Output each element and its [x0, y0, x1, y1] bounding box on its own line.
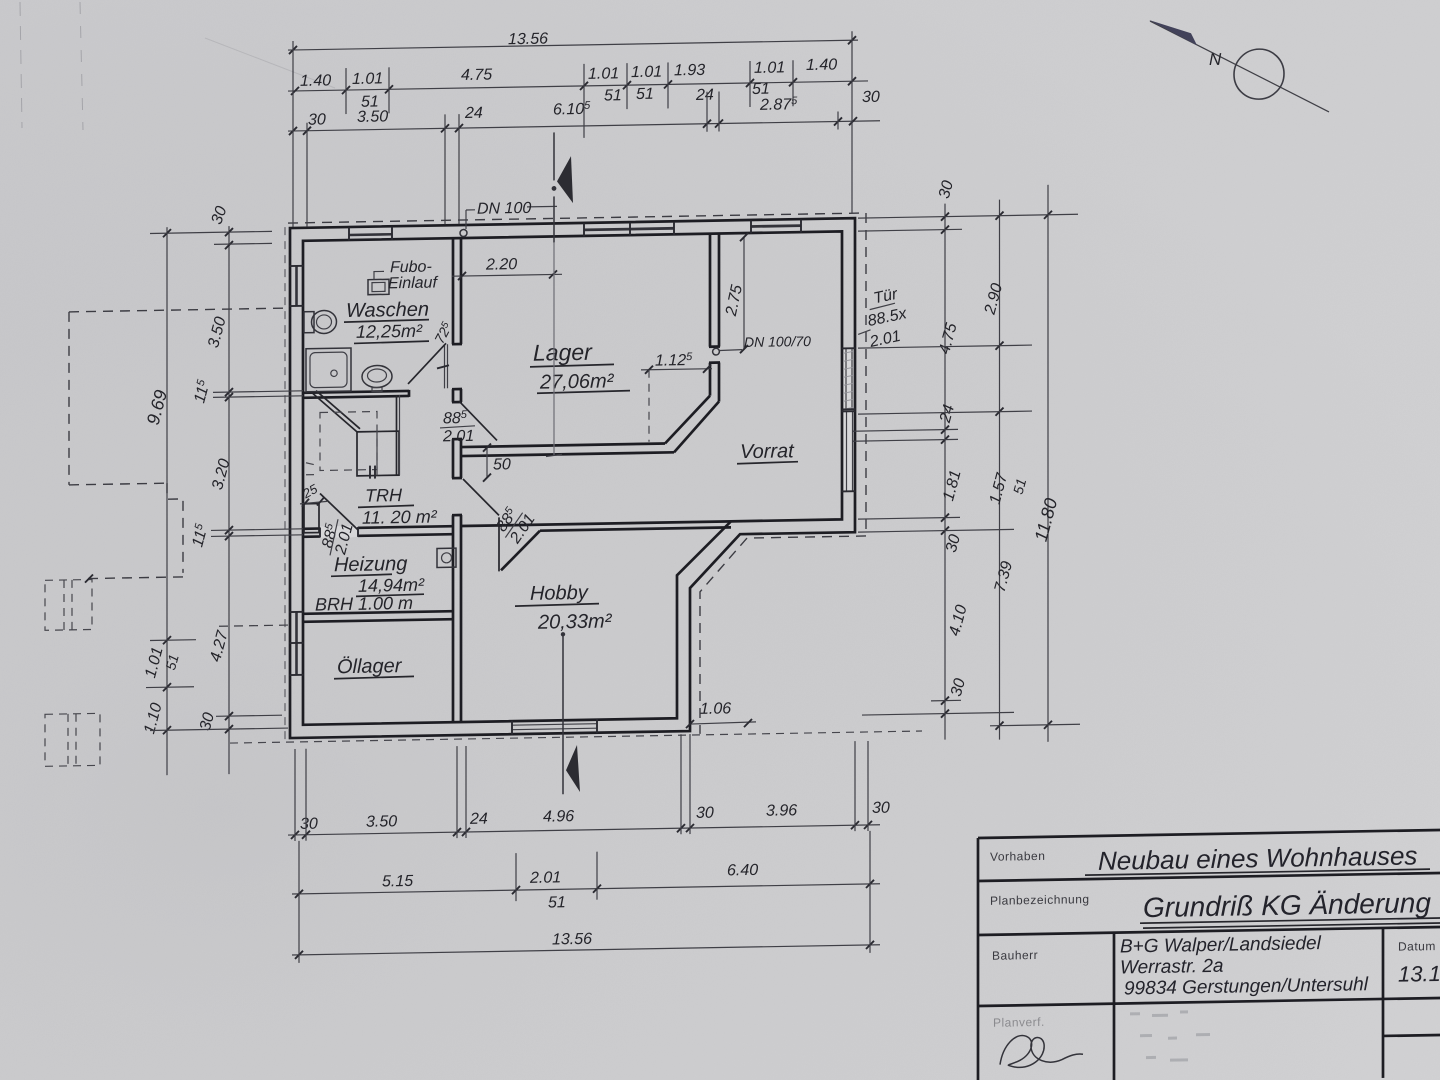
svg-text:N: N — [1209, 50, 1222, 69]
svg-text:20,33m²: 20,33m² — [537, 610, 613, 633]
svg-text:24: 24 — [464, 105, 483, 122]
svg-text:30: 30 — [308, 111, 326, 128]
svg-text:99834 Gerstungen/Untersuhl: 99834 Gerstungen/Untersuhl — [1124, 974, 1369, 999]
svg-text:30: 30 — [696, 805, 714, 822]
svg-text:51: 51 — [604, 87, 622, 104]
svg-text:27,06m²: 27,06m² — [539, 370, 615, 393]
svg-text:50: 50 — [493, 456, 511, 473]
svg-text:4.75: 4.75 — [461, 67, 492, 85]
svg-text:Einlauf: Einlauf — [388, 274, 438, 292]
svg-text:Planverf.: Planverf. — [993, 1015, 1045, 1030]
svg-text:11. 20 m²: 11. 20 m² — [362, 506, 438, 527]
svg-text:4.96: 4.96 — [543, 808, 574, 826]
svg-text:24: 24 — [469, 811, 488, 828]
svg-text:Bauherr: Bauherr — [992, 948, 1038, 963]
svg-text:Vorhaben: Vorhaben — [990, 849, 1045, 864]
svg-text:3.50: 3.50 — [366, 813, 397, 831]
svg-text:51: 51 — [548, 894, 566, 911]
svg-text:DN 100: DN 100 — [477, 200, 531, 218]
svg-text:3.50: 3.50 — [357, 108, 388, 126]
svg-text:24: 24 — [695, 87, 714, 104]
svg-text:TRH: TRH — [365, 485, 403, 506]
svg-text:13.56: 13.56 — [552, 931, 592, 949]
svg-text:1.40: 1.40 — [806, 56, 837, 74]
svg-text:Planbezeichnung: Planbezeichnung — [990, 892, 1090, 908]
svg-text:1.01: 1.01 — [588, 65, 619, 83]
svg-text:30: 30 — [862, 89, 880, 106]
svg-text:2.20: 2.20 — [485, 256, 517, 274]
svg-text:Datum: Datum — [1398, 939, 1436, 954]
svg-text:1.01: 1.01 — [631, 64, 662, 82]
svg-text:2.01: 2.01 — [442, 428, 474, 446]
svg-text:1.01: 1.01 — [352, 70, 383, 88]
svg-text:Waschen: Waschen — [346, 299, 429, 322]
svg-text:Lager: Lager — [533, 339, 593, 366]
svg-text:Werrastr. 2a: Werrastr. 2a — [1120, 956, 1223, 979]
svg-text:1.01: 1.01 — [754, 59, 785, 77]
svg-text:6.40: 6.40 — [727, 862, 758, 880]
svg-text:5.15: 5.15 — [382, 873, 413, 891]
svg-text:2.01: 2.01 — [529, 869, 561, 887]
svg-text:13.56: 13.56 — [508, 31, 548, 49]
svg-text:12,25m²: 12,25m² — [356, 321, 423, 342]
svg-text:B+G Walper/Landsiedel: B+G Walper/Landsiedel — [1120, 933, 1322, 958]
svg-text:BRH 1.00 m: BRH 1.00 m — [315, 593, 413, 615]
svg-text:1.06: 1.06 — [700, 700, 731, 718]
svg-text:Öllager: Öllager — [337, 655, 403, 678]
svg-text:Grundriß KG Änderung: Grundriß KG Änderung — [1143, 887, 1431, 923]
svg-text:Heizung: Heizung — [334, 553, 407, 576]
svg-text:13.1: 13.1 — [1398, 961, 1440, 987]
svg-text:51: 51 — [752, 81, 770, 98]
svg-text:51: 51 — [636, 86, 654, 103]
svg-text:Hobby: Hobby — [530, 582, 589, 605]
svg-text:1.40: 1.40 — [300, 72, 331, 90]
svg-text:3.96: 3.96 — [766, 802, 797, 820]
svg-text:Vorrat: Vorrat — [740, 440, 795, 463]
svg-text:30: 30 — [872, 800, 890, 817]
svg-text:Fubo-: Fubo- — [390, 259, 432, 277]
svg-text:1.93: 1.93 — [674, 62, 705, 80]
svg-text:DN 100/70: DN 100/70 — [744, 333, 811, 350]
svg-text:30: 30 — [300, 816, 318, 833]
